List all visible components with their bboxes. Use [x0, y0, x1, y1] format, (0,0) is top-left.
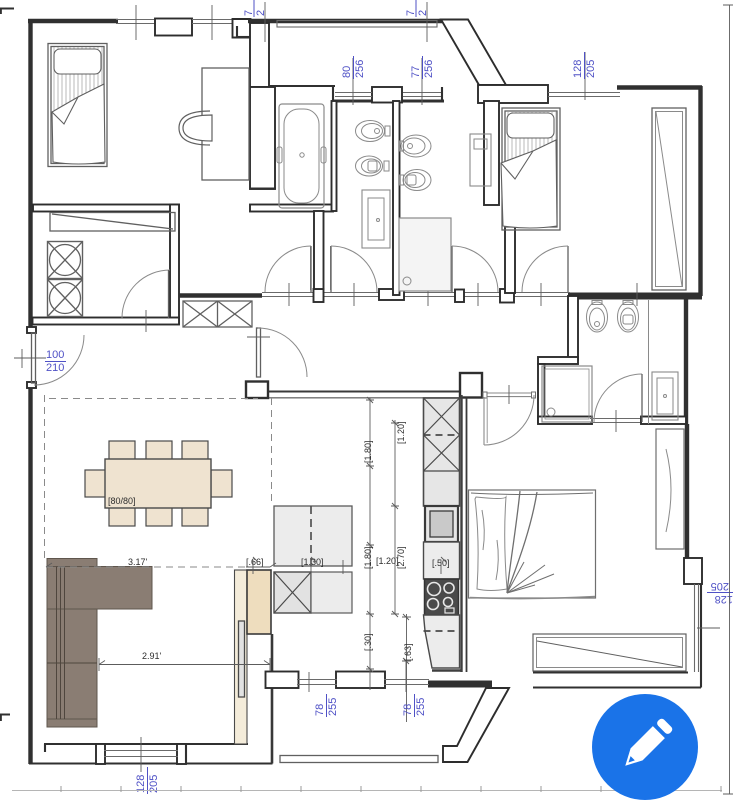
svg-text:2: 2 [417, 10, 429, 16]
svg-text:255: 255 [415, 698, 427, 716]
svg-text:205: 205 [711, 580, 729, 592]
svg-text:2: 2 [255, 10, 267, 16]
svg-text:[80/80]: [80/80] [108, 496, 136, 506]
svg-text:255: 255 [327, 698, 339, 716]
svg-text:256: 256 [354, 60, 366, 78]
svg-text:7: 7 [405, 10, 417, 16]
svg-text:77: 77 [410, 66, 422, 78]
svg-text:205: 205 [585, 60, 597, 78]
svg-text:[1.20]: [1.20] [376, 556, 399, 566]
svg-text:7: 7 [243, 10, 255, 16]
svg-text:80: 80 [341, 66, 353, 78]
svg-text:210: 210 [46, 362, 64, 374]
svg-text:100: 100 [46, 349, 64, 361]
svg-text:128: 128 [715, 593, 733, 605]
svg-text:[.30]: [.30] [363, 633, 373, 651]
svg-text:256: 256 [423, 60, 435, 78]
svg-text:3.17': 3.17' [128, 557, 148, 567]
svg-text:[1.80]: [1.80] [363, 546, 373, 569]
svg-text:78: 78 [402, 704, 414, 716]
svg-text:[1.20]: [1.20] [396, 421, 406, 444]
svg-text:[1.80]: [1.80] [363, 440, 373, 463]
svg-text:[.63]: [.63] [403, 643, 413, 661]
svg-text:2.91': 2.91' [142, 651, 162, 661]
svg-text:128: 128 [572, 60, 584, 78]
svg-text:78: 78 [314, 704, 326, 716]
